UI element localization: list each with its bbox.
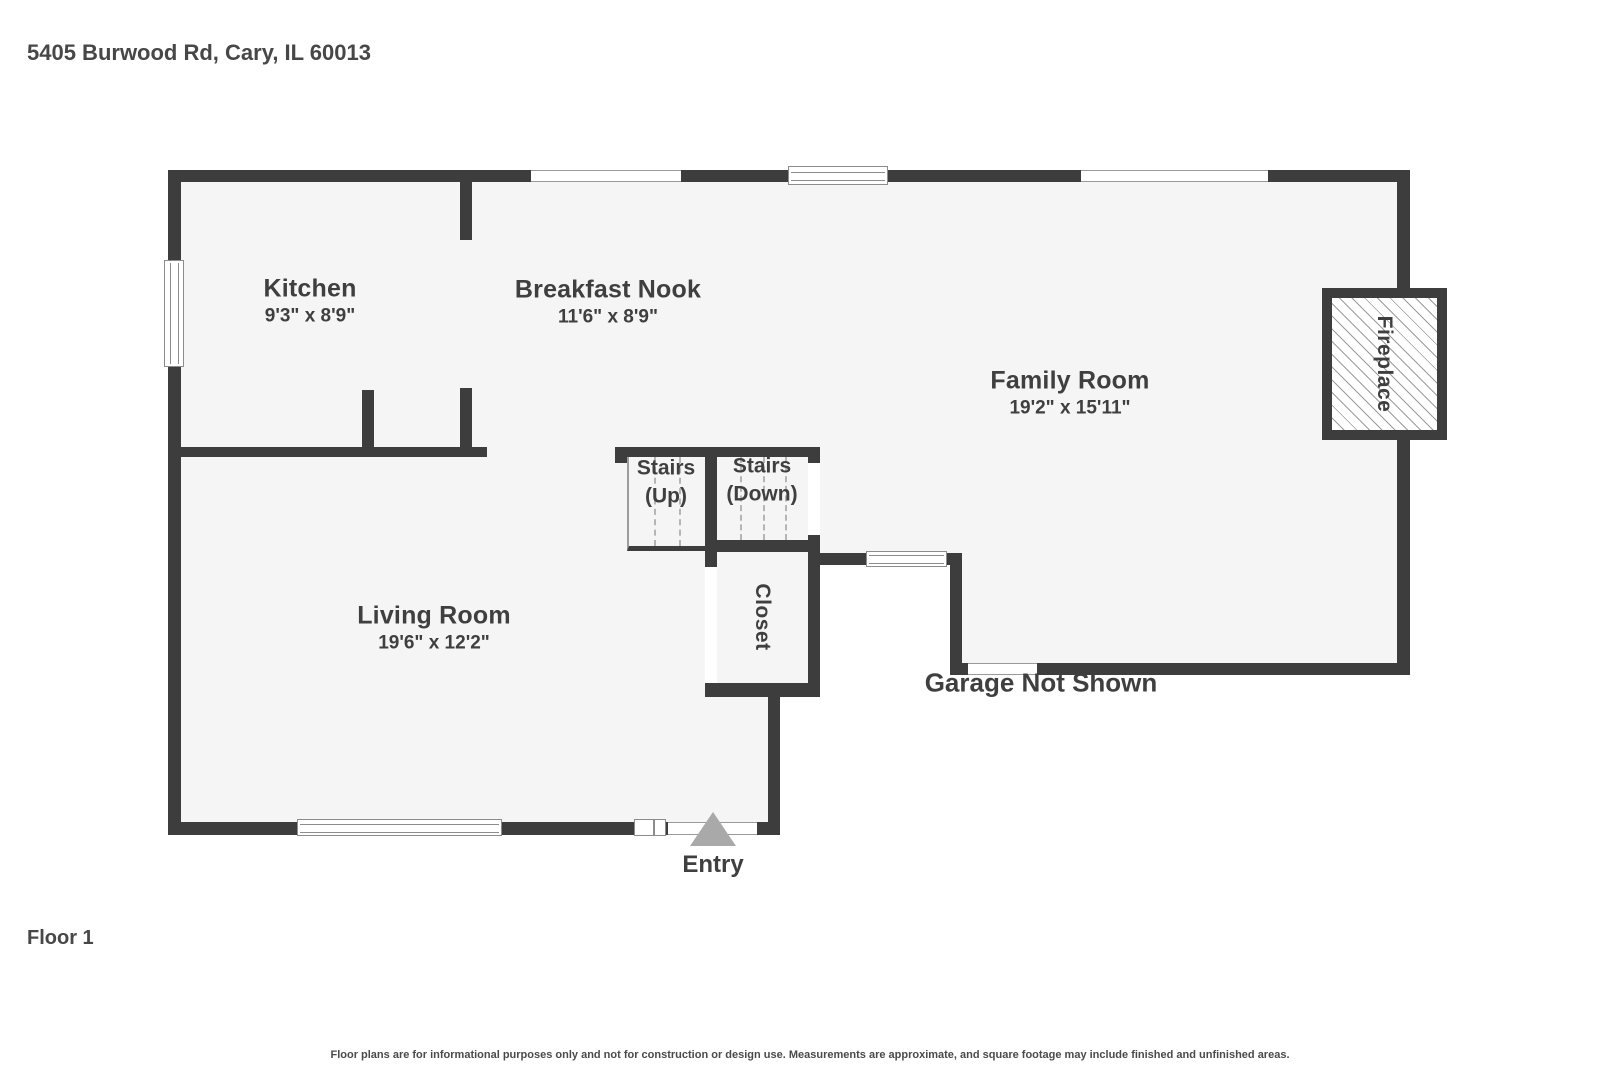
wall-kitchen-bottom	[168, 447, 487, 457]
room-dims: 19'6" x 12'2"	[357, 630, 511, 657]
window-top-center	[788, 166, 888, 185]
window-front-small	[634, 819, 666, 836]
room-name: Family Room	[990, 366, 1149, 395]
page-title: 5405 Burwood Rd, Cary, IL 60013	[27, 40, 371, 66]
fireplace-label: Fireplace	[1372, 316, 1396, 413]
entry-label: Entry	[682, 851, 743, 879]
wall-closet-top	[717, 540, 808, 552]
window-top-left	[531, 170, 681, 182]
wall-stairs-top-cap	[615, 447, 627, 463]
stairs-door-opening	[808, 463, 820, 535]
room-dims: 11'6" x 8'9"	[515, 304, 701, 331]
disclaimer-text: Floor plans are for informational purpos…	[0, 1049, 1620, 1061]
room-label-living-room: Living Room 19'6" x 12'2"	[357, 601, 511, 656]
stairs-down-line2: (Down)	[726, 480, 797, 508]
room-dims: 19'2" x 15'11"	[990, 395, 1149, 422]
window-kitchen-left	[164, 260, 184, 367]
garage-not-shown-label: Garage Not Shown	[925, 668, 1158, 699]
room-dims: 9'3" x 8'9"	[263, 303, 356, 330]
floor-area-family-room-lower	[962, 553, 1398, 663]
floor-label: Floor 1	[27, 927, 94, 950]
stairs-down-line1: Stairs	[726, 452, 797, 480]
stairs-up-label: Stairs (Up)	[637, 454, 695, 509]
window-garage-notch	[866, 551, 947, 567]
wall-kitchen-nook-divider	[460, 182, 472, 240]
stairs-down-label: Stairs (Down)	[726, 452, 797, 507]
window-living-room-front	[297, 819, 502, 836]
wall-kitchen-doorway-stub-left	[362, 390, 374, 447]
room-label-family-room: Family Room 19'2" x 15'11"	[990, 366, 1149, 421]
window-mullion	[653, 820, 655, 835]
room-label-breakfast-nook: Breakfast Nook 11'6" x 8'9"	[515, 275, 701, 330]
wall-kitchen-doorway-stub-right	[460, 388, 472, 447]
wall-closet-bottom	[705, 683, 820, 697]
room-name: Living Room	[357, 601, 511, 630]
closet-door-opening	[705, 567, 717, 683]
window-pane	[869, 555, 944, 564]
window-pane	[300, 824, 499, 833]
closet-label: Closet	[750, 583, 774, 650]
wall-living-east	[768, 697, 780, 835]
stairs-up-line1: Stairs	[637, 454, 695, 482]
wall-garage-notch-vertical	[950, 553, 962, 675]
window-pane	[170, 263, 179, 364]
wall-stairs-middle	[705, 447, 717, 567]
room-name: Breakfast Nook	[515, 275, 701, 304]
room-name: Kitchen	[263, 274, 356, 303]
room-label-kitchen: Kitchen 9'3" x 8'9"	[263, 274, 356, 329]
floor-plan-page: { "title": "5405 Burwood Rd, Cary, IL 60…	[0, 0, 1620, 1080]
window-pane	[791, 172, 885, 181]
entry-arrow-icon	[690, 812, 736, 846]
window-top-right	[1081, 170, 1268, 182]
stairs-up-line2: (Up)	[637, 482, 695, 510]
